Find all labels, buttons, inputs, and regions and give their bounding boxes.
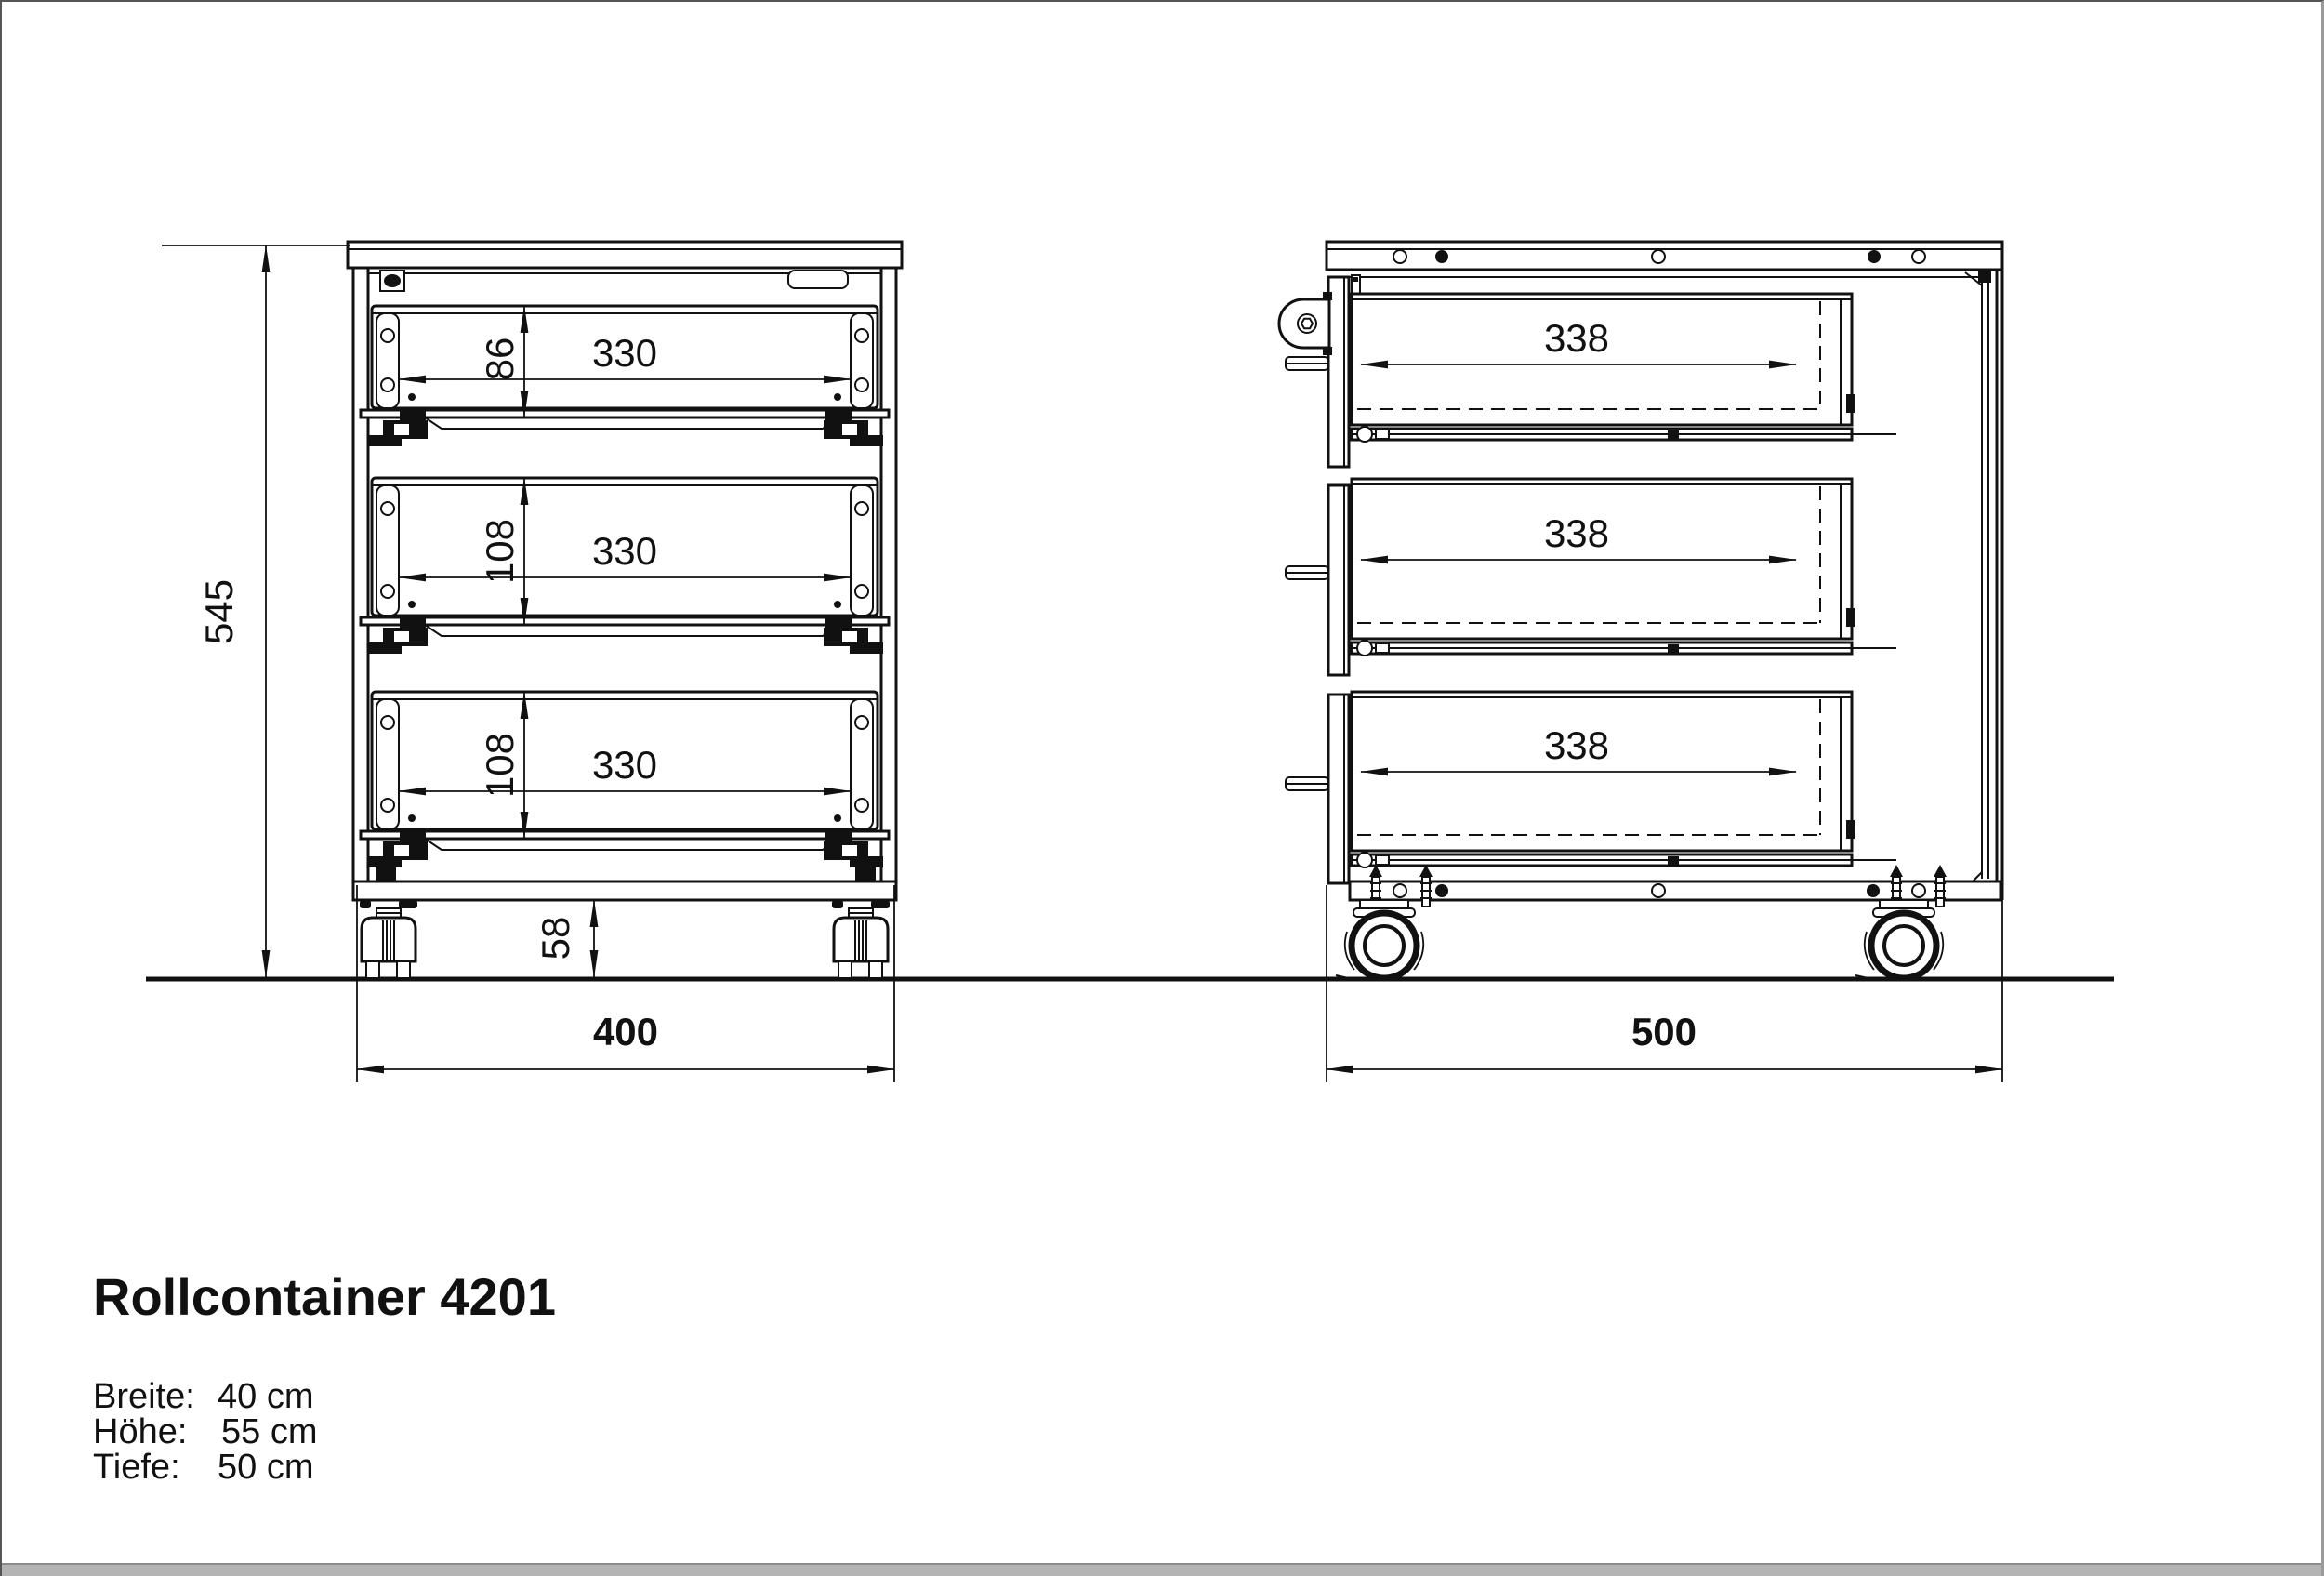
handle-drawer-2 [1286, 566, 1328, 579]
side-view: 338 338 [1279, 242, 2002, 979]
handle-drawer-3 [1286, 777, 1328, 790]
spec-value-tiefe: 50 cm [218, 1448, 313, 1487]
side-caster-back [1855, 900, 1943, 979]
title-block: Rollcontainer 4201 Breite: 40 cm Höhe: 5… [93, 1267, 556, 1487]
side-caster-front [1336, 900, 1423, 979]
page-title: Rollcontainer 4201 [93, 1267, 556, 1326]
cam-lock-fitting [380, 271, 404, 291]
spec-label-hoehe: Höhe: [93, 1412, 187, 1451]
spec-value-hoehe: 55 cm [221, 1412, 317, 1451]
drawing-sheet: 86 330 [0, 0, 2324, 1576]
sheet-bottom-bar [2, 1563, 2321, 1576]
dim-side-drawer1-depth: 338 [1544, 316, 1609, 360]
dim-drawer3-height: 108 [478, 733, 522, 798]
spec-value-breite: 40 cm [218, 1377, 313, 1416]
dim-drawer1-width: 330 [592, 331, 657, 375]
front-drawer-2: 108 330 [361, 478, 889, 654]
lock-cylinder [1279, 292, 1332, 355]
dimension-400: 400 [357, 885, 894, 1082]
front-caster-right [832, 900, 890, 978]
dim-overall-width: 400 [593, 1010, 658, 1053]
spec-label-tiefe: Tiefe: [93, 1448, 180, 1487]
dim-drawer2-height: 108 [478, 519, 522, 584]
side-drawer-2: 338 [1352, 479, 1896, 656]
front-drawer-3: 108 330 [361, 692, 889, 881]
dim-overall-depth: 500 [1631, 1010, 1697, 1053]
dimension-545: 545 [162, 245, 350, 977]
dim-overall-height: 545 [197, 579, 241, 644]
dimension-58: 58 [534, 900, 594, 977]
front-caster-left [360, 900, 417, 978]
handle-recess [788, 271, 848, 288]
front-view: 86 330 [348, 242, 902, 978]
side-drawer-1: 338 [1352, 294, 1896, 442]
dim-drawer1-height: 86 [478, 338, 522, 381]
side-drawer-3: 338 [1352, 692, 1896, 867]
front-drawer-1: 86 330 [361, 306, 889, 446]
dim-side-drawer3-depth: 338 [1544, 723, 1609, 767]
dim-caster-height: 58 [534, 917, 577, 960]
dim-drawer3-width: 330 [592, 743, 657, 787]
dim-drawer2-width: 330 [592, 529, 657, 573]
technical-drawing: 86 330 [2, 2, 2324, 1576]
dim-side-drawer2-depth: 338 [1544, 511, 1609, 555]
handle-drawer-1 [1286, 357, 1328, 370]
spec-label-breite: Breite: [93, 1377, 195, 1416]
